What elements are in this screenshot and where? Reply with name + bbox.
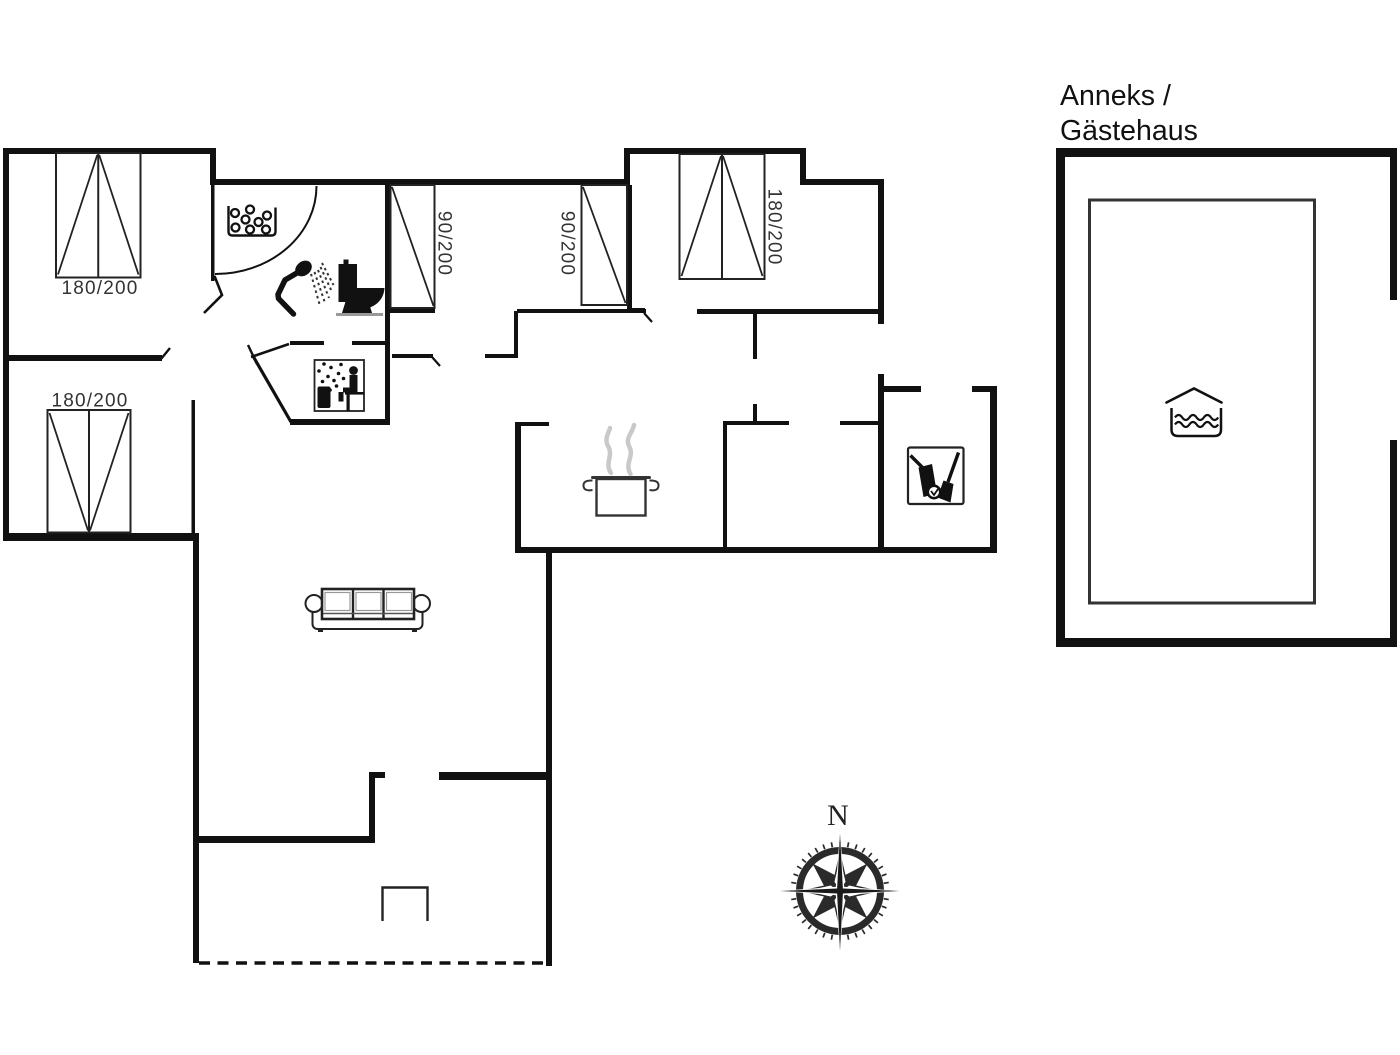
svg-text:180/200: 180/200 [764, 188, 785, 265]
svg-text:180/200: 180/200 [51, 391, 128, 412]
svg-text:90/200: 90/200 [434, 211, 455, 276]
svg-text:Anneks /: Anneks / [1060, 80, 1171, 112]
svg-text:Gästehaus: Gästehaus [1060, 115, 1198, 147]
svg-text:90/200: 90/200 [557, 211, 578, 276]
svg-text:N: N [827, 799, 849, 832]
svg-text:180/200: 180/200 [61, 278, 138, 299]
